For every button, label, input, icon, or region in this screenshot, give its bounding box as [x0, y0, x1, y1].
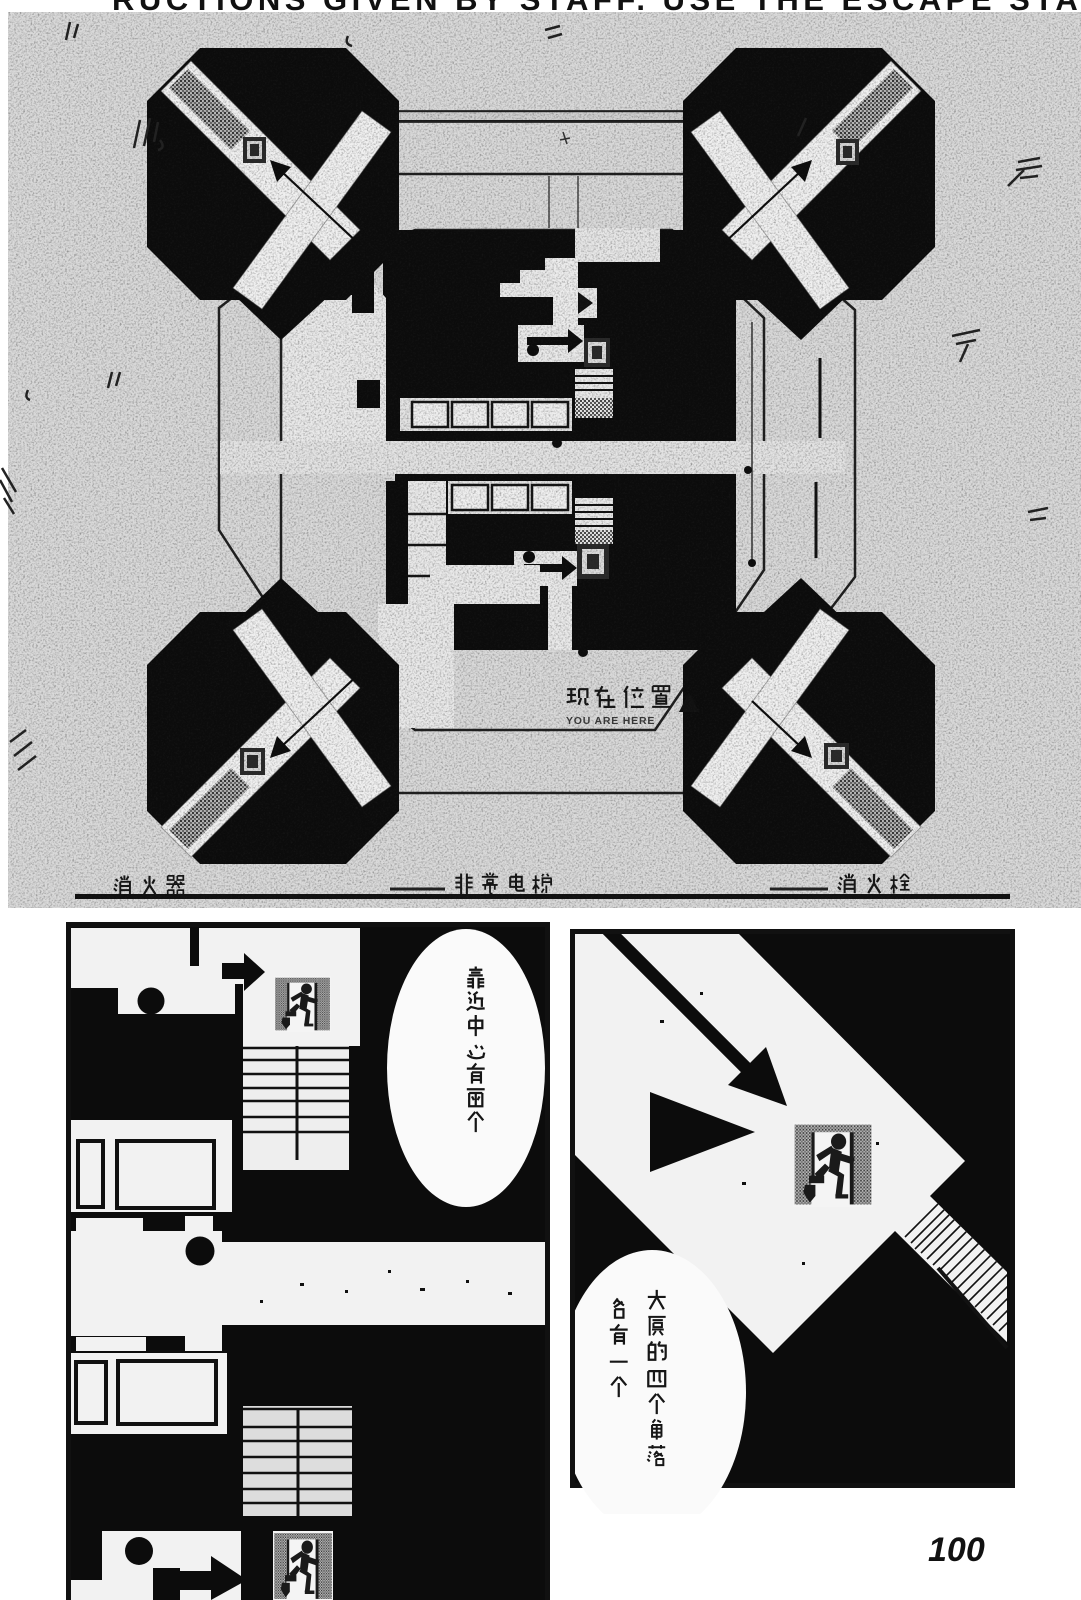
- svg-text:100: 100: [928, 1531, 985, 1569]
